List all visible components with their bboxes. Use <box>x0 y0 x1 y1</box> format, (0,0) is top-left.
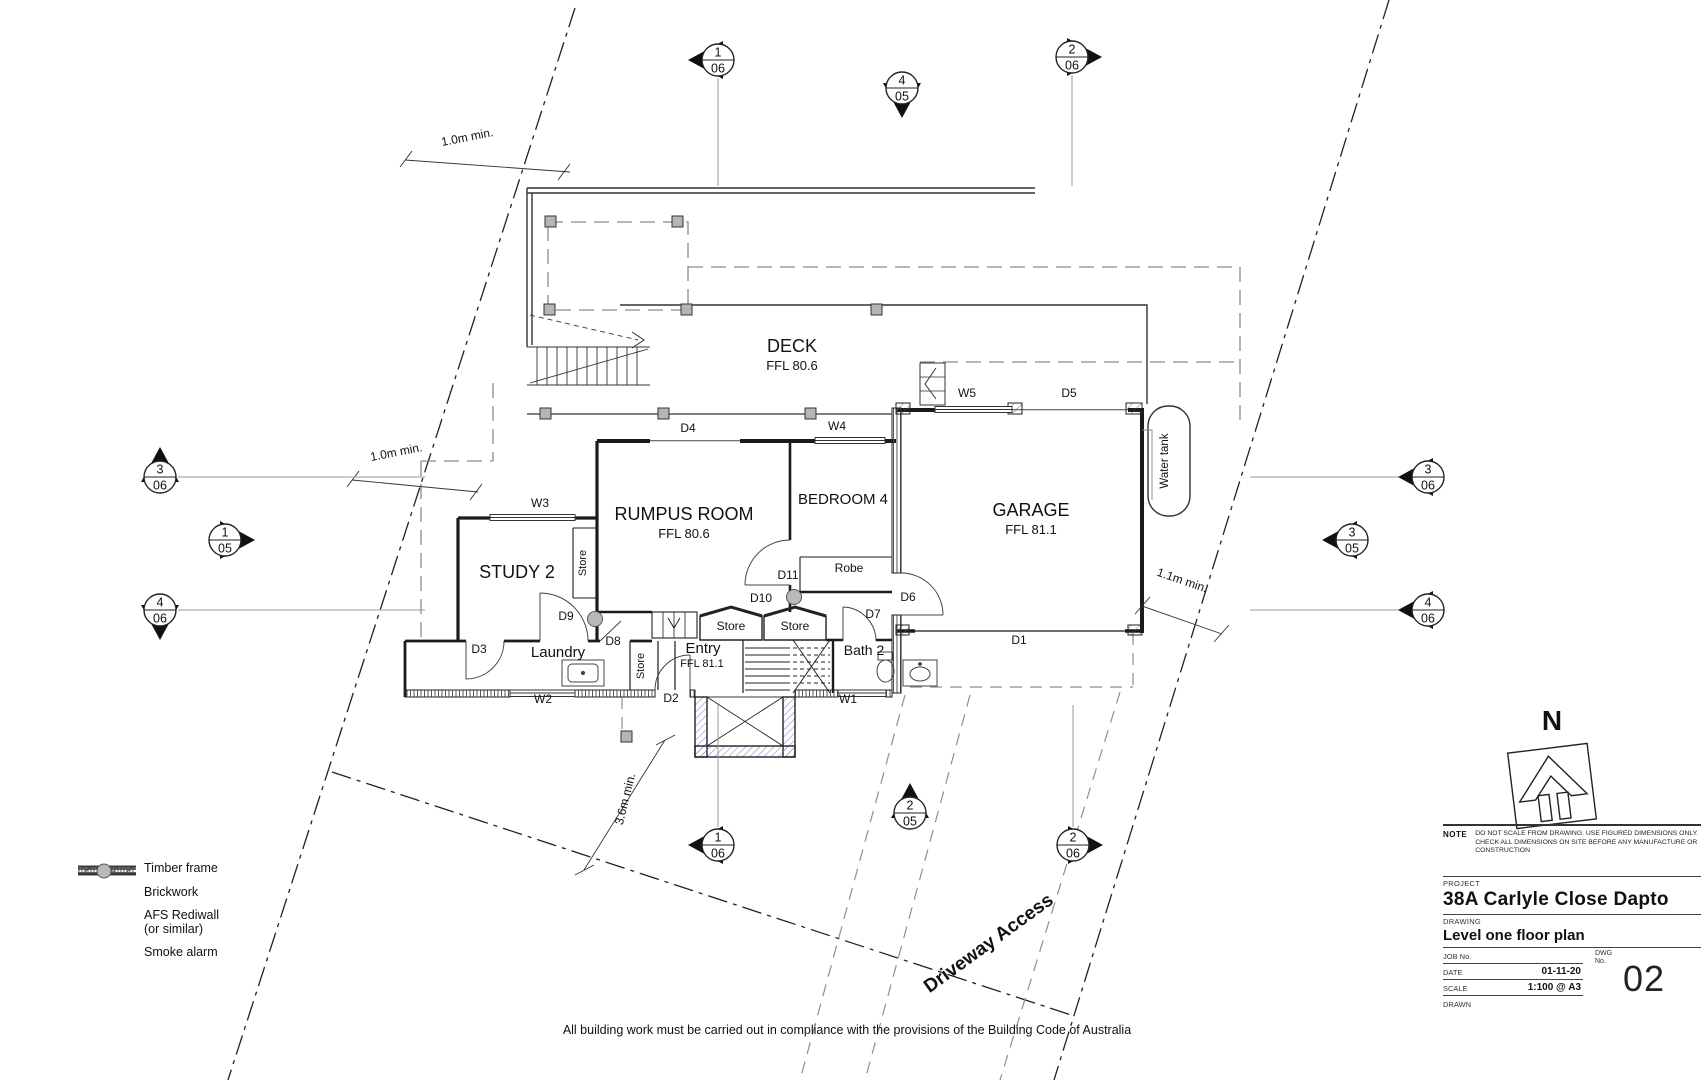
door-tag: D9 <box>558 609 574 623</box>
water-tank-label: Water tank <box>1159 433 1171 488</box>
site-boundary <box>228 0 1389 1080</box>
store-label: Store <box>717 619 746 633</box>
scale-label: SCALE <box>1443 984 1468 993</box>
compliance-note: All building work must be carried out in… <box>538 1023 1156 1037</box>
dimension-text: 1.0m min. <box>369 440 423 464</box>
dr-label: DRAWING <box>1443 917 1701 926</box>
door-tag: D6 <box>900 590 916 604</box>
legend-item: Smoke alarm <box>74 946 219 960</box>
section-marker: 406 <box>1398 591 1444 629</box>
room-label: DECK <box>767 336 817 356</box>
marker-sheet: 06 <box>153 479 167 493</box>
room-ffl-label: FFL 81.1 <box>680 658 724 670</box>
legend: Timber frameBrickworkAFS Rediwall(or sim… <box>74 862 219 970</box>
section-marker: 106 <box>688 41 734 79</box>
marker-number: 4 <box>157 596 164 610</box>
marker-number: 1 <box>715 831 722 845</box>
marker-number: 3 <box>157 463 164 477</box>
north-label: N <box>1542 705 1562 736</box>
store-label: Store <box>577 550 589 576</box>
scale-value: 1:100 @ A3 <box>1528 982 1581 993</box>
walls <box>405 408 1142 697</box>
drawing-name: Level one floor plan <box>1443 927 1701 944</box>
section-marker: 205 <box>891 783 929 829</box>
door-tag: D1 <box>1011 633 1027 647</box>
window-tag: W2 <box>534 692 552 706</box>
door-tag: D7 <box>865 607 881 621</box>
driveway-access-label: Driveway Access <box>920 890 1057 998</box>
legend-label: AFS Rediwall(or similar) <box>144 909 219 936</box>
legend-item: AFS Rediwall(or similar) <box>74 909 219 936</box>
afs-walls <box>405 403 1142 697</box>
marker-sheet: 06 <box>711 62 725 76</box>
legend-item: Brickwork <box>74 886 219 900</box>
marker-sheet: 06 <box>1066 847 1080 861</box>
marker-number: 4 <box>899 74 906 88</box>
section-marker: 105 <box>209 521 255 559</box>
store-label: Store <box>635 653 647 679</box>
note-label: NOTE <box>1443 830 1467 856</box>
marker-number: 1 <box>222 526 229 540</box>
dwg-number: 02 <box>1623 958 1665 1000</box>
room-ffl-label: FFL 80.6 <box>766 358 818 373</box>
room-label: GARAGE <box>992 500 1069 520</box>
room-ffl-label: FFL 81.1 <box>1005 522 1057 537</box>
marker-number: 2 <box>1070 831 1077 845</box>
door-tag: D10 <box>750 591 772 605</box>
door-tag: D8 <box>605 634 621 648</box>
room-ffl-label: FFL 80.6 <box>658 526 710 541</box>
section-marker: 106 <box>688 826 734 864</box>
marker-sheet: 06 <box>1421 612 1435 626</box>
window-tag: W4 <box>828 419 846 433</box>
marker-sheet: 06 <box>153 612 167 626</box>
legend-label: Brickwork <box>144 886 198 900</box>
marker-number: 1 <box>715 46 722 60</box>
legend-label: Smoke alarm <box>144 946 218 960</box>
room-label: Entry <box>685 640 721 657</box>
section-marker: 405 <box>883 72 921 118</box>
marker-number: 3 <box>1425 463 1432 477</box>
laundry-sink <box>562 660 604 686</box>
door-tag: D5 <box>1061 386 1077 400</box>
section-marker: 305 <box>1322 521 1368 559</box>
dimension-text: 1.0m min. <box>440 125 494 149</box>
marker-number: 4 <box>1425 596 1432 610</box>
marker-sheet: 06 <box>1065 59 1079 73</box>
job-no-label: JOB No. <box>1443 952 1471 961</box>
door-tag: D11 <box>777 568 798 582</box>
drawing-sheet: DECKFFL 80.6RUMPUS ROOMFFL 80.6STUDY 2BE… <box>0 0 1707 1080</box>
drawn-label: DRAWN <box>1443 1000 1471 1009</box>
note-line-1: DO NOT SCALE FROM DRAWING. USE FIGURED D… <box>1475 830 1701 839</box>
date-label: DATE <box>1443 968 1462 977</box>
section-marker: 306 <box>141 447 179 493</box>
marker-sheet: 06 <box>711 847 725 861</box>
room-label: STUDY 2 <box>479 562 555 582</box>
marker-number: 3 <box>1349 526 1356 540</box>
marker-sheet: 05 <box>1345 542 1359 556</box>
room-label: Robe <box>835 561 864 575</box>
marker-number: 2 <box>907 799 914 813</box>
dwg-label-1: DWG <box>1595 950 1701 958</box>
marker-sheet: 05 <box>895 90 909 104</box>
door-tag: D3 <box>471 642 487 656</box>
room-label: BEDROOM 4 <box>798 491 888 508</box>
marker-sheet: 05 <box>903 815 917 829</box>
title-note: NOTE DO NOT SCALE FROM DRAWING. USE FIGU… <box>1443 824 1701 864</box>
door-tag: D4 <box>680 421 696 435</box>
dimension-lines <box>347 151 1229 875</box>
door-tag: D2 <box>663 691 679 705</box>
store-label: Store <box>781 619 810 633</box>
room-label: Bath 2 <box>844 642 885 658</box>
date-value: 01-11-20 <box>1542 966 1581 977</box>
project-name: 38A Carlyle Close Dapto <box>1443 889 1701 911</box>
marker-number: 2 <box>1069 43 1076 57</box>
project-label: PROJECT <box>1443 879 1701 888</box>
north-arrow-icon <box>1508 743 1597 828</box>
window-tag: W5 <box>958 386 976 400</box>
note-line-2: CHECK ALL DIMENSIONS ON SITE BEFORE ANY … <box>1475 839 1701 856</box>
marker-sheet: 05 <box>218 542 232 556</box>
window-tag: W1 <box>839 692 857 706</box>
entry-porch <box>695 697 795 757</box>
basin-icon <box>903 660 937 686</box>
marker-sheet: 06 <box>1421 479 1435 493</box>
dimension-text: 3.6m min. <box>612 772 638 827</box>
dimension-text: 1.1m min. <box>1155 565 1209 595</box>
section-marker: 206 <box>1056 38 1102 76</box>
title-block: NOTE DO NOT SCALE FROM DRAWING. USE FIGU… <box>1443 824 1701 1011</box>
legend-label: Timber frame <box>144 862 218 876</box>
section-marker: 206 <box>1057 826 1103 864</box>
room-label: Laundry <box>531 644 586 661</box>
section-marker: 306 <box>1398 458 1444 496</box>
window-tag: W3 <box>531 496 549 510</box>
section-marker: 406 <box>141 594 179 640</box>
room-label: RUMPUS ROOM <box>615 504 754 524</box>
